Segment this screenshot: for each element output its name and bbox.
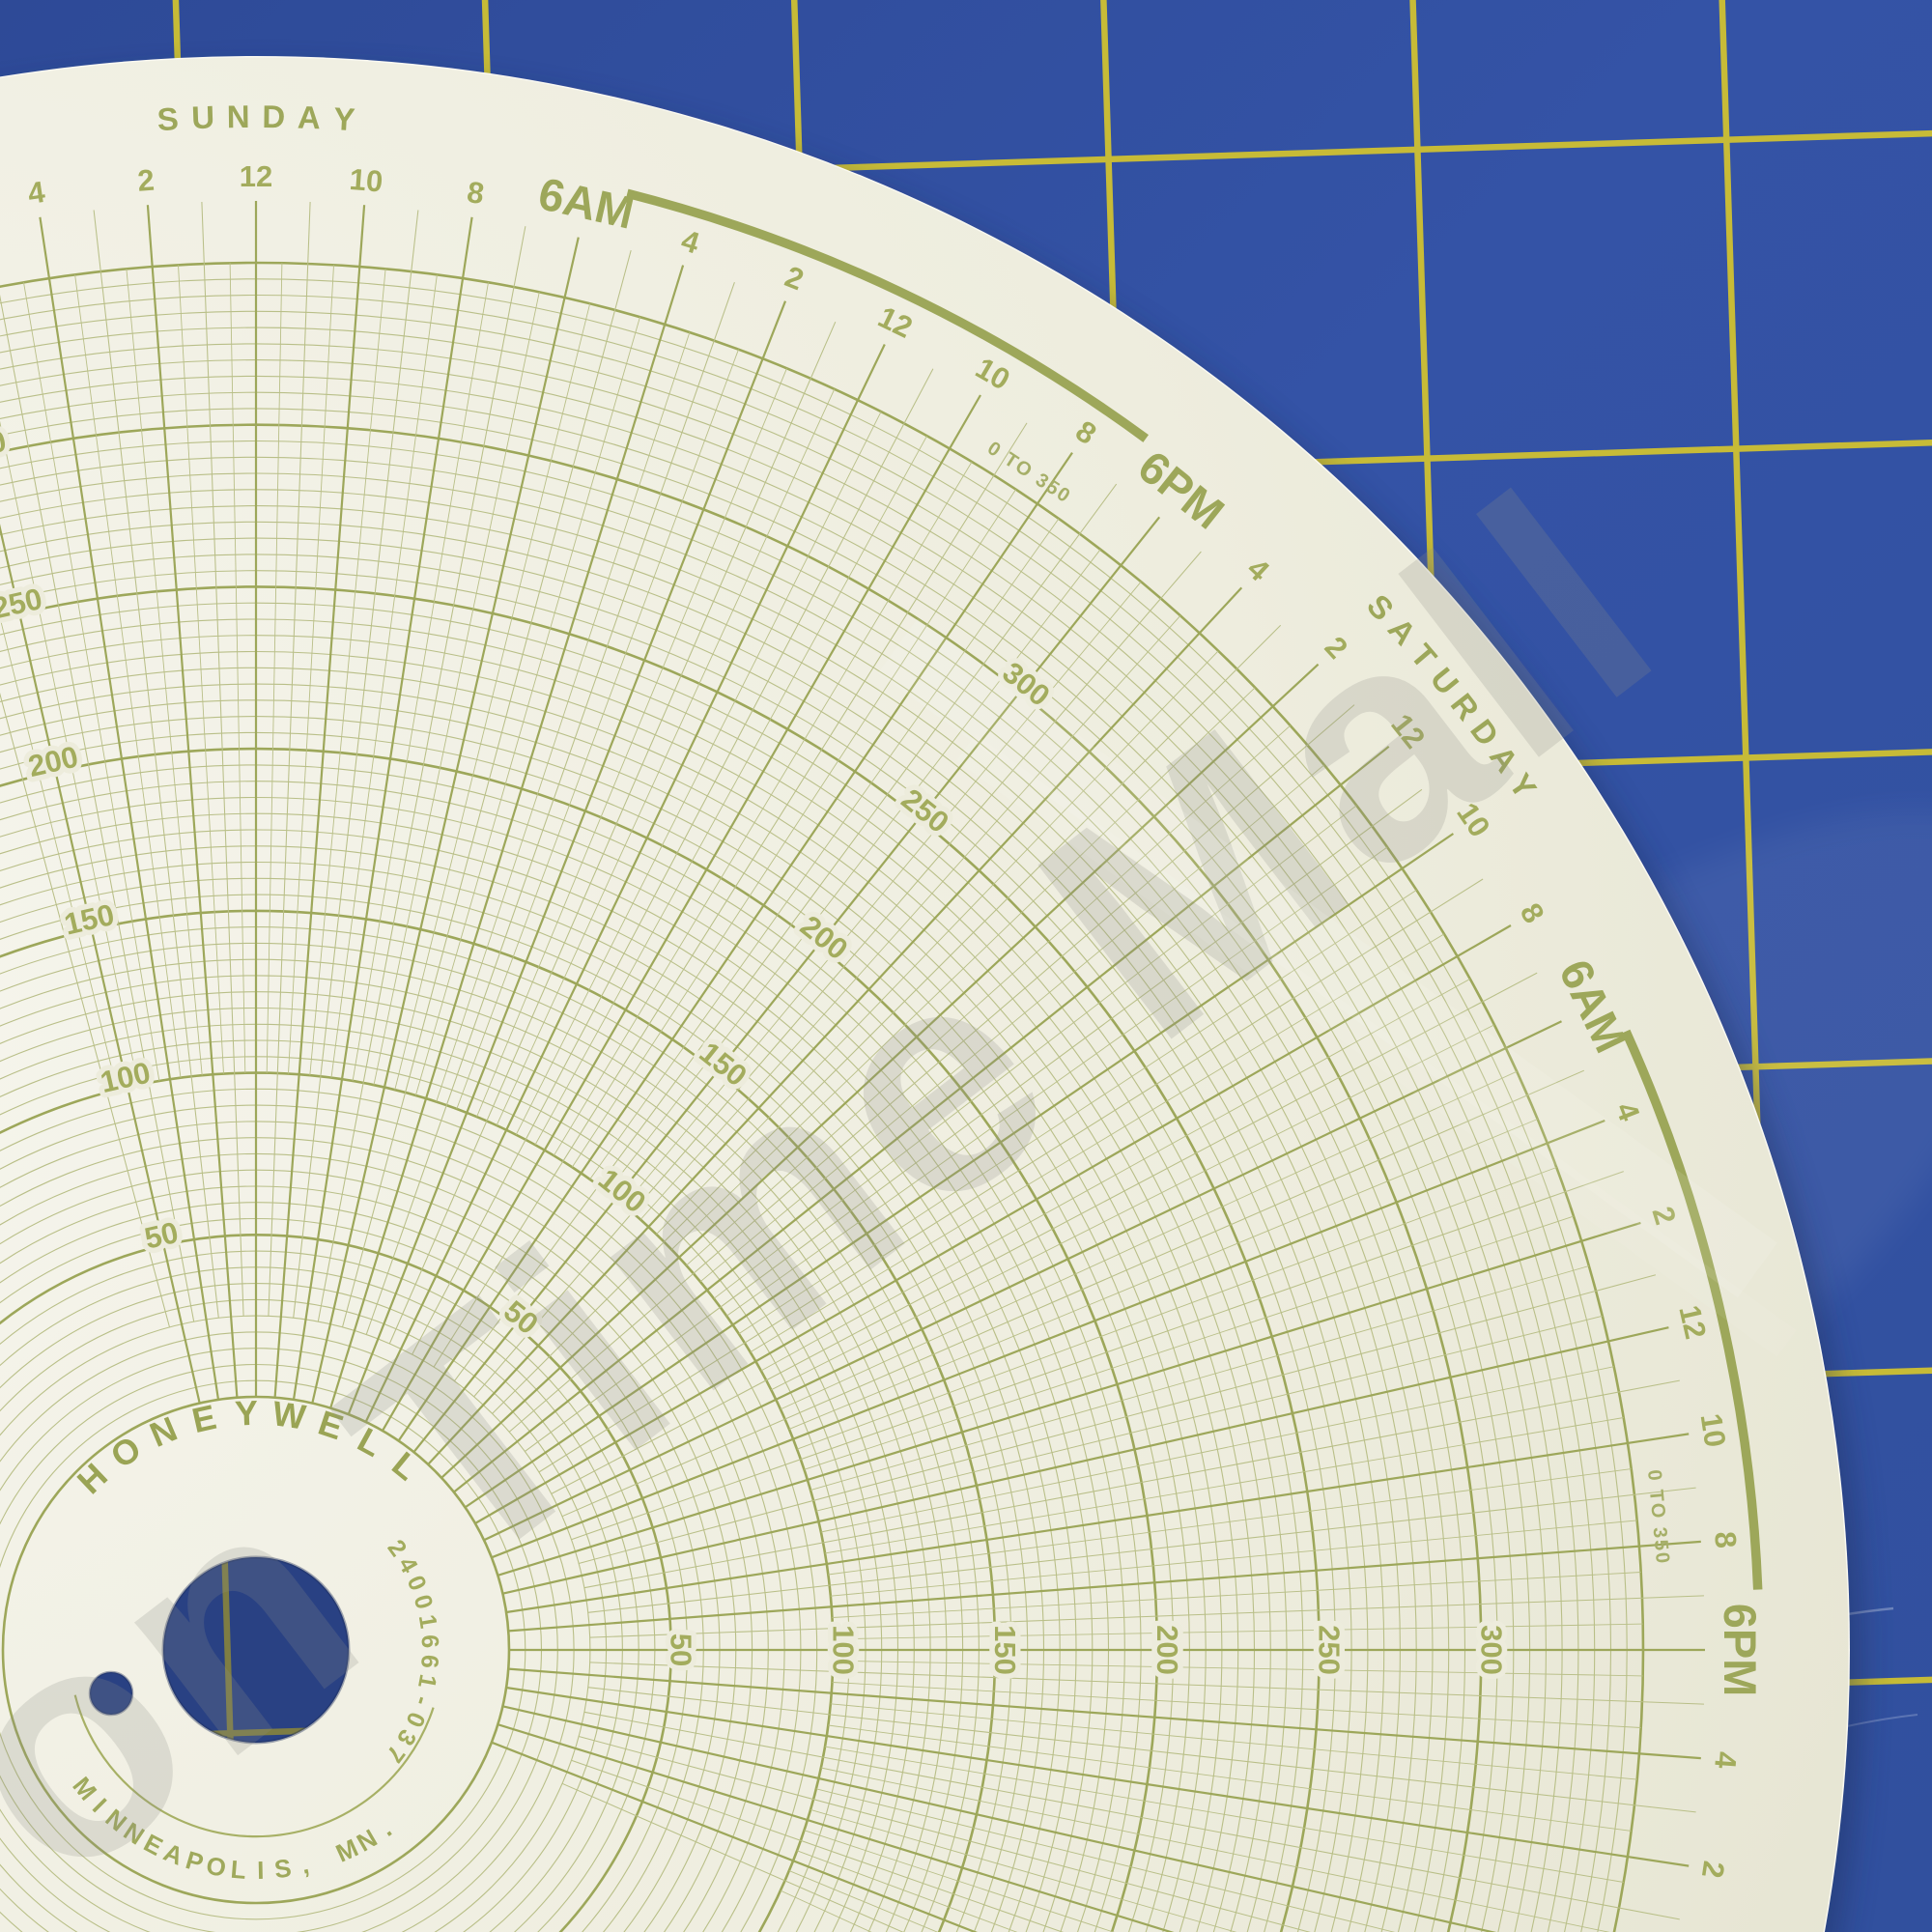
hour-label-10: 10 [348,162,384,198]
hour-label-6PM: 6PM [1715,1604,1766,1697]
hour-label-12: 12 [240,159,272,193]
svg-text:L: L [230,1855,247,1885]
photo-chart-recorder-on-cutting-mat: 6PM42121086AM42121086PM42121086AM4212108… [0,0,1932,1932]
svg-text:250: 250 [1313,1625,1347,1675]
svg-text:S: S [156,100,180,137]
hour-label-8: 8 [1708,1530,1743,1549]
scene-svg: 6PM42121086AM42121086PM42121086AM4212108… [0,0,1932,1932]
svg-text:300: 300 [1474,1625,1508,1675]
hour-label-4: 4 [1708,1750,1743,1771]
svg-text:S: S [272,1853,293,1884]
svg-text:D: D [262,99,285,134]
svg-text:N: N [227,99,250,134]
svg-text:U: U [191,99,215,136]
hour-label-10: 10 [1694,1411,1733,1449]
svg-text:100: 100 [826,1625,860,1675]
svg-text:200: 200 [1151,1625,1184,1675]
hour-label-2: 2 [136,163,156,198]
svg-text:I: I [257,1856,265,1885]
svg-text:A: A [297,99,321,136]
svg-text:150: 150 [988,1625,1022,1675]
svg-text:50: 50 [665,1634,698,1666]
svg-text:Y: Y [332,100,355,137]
